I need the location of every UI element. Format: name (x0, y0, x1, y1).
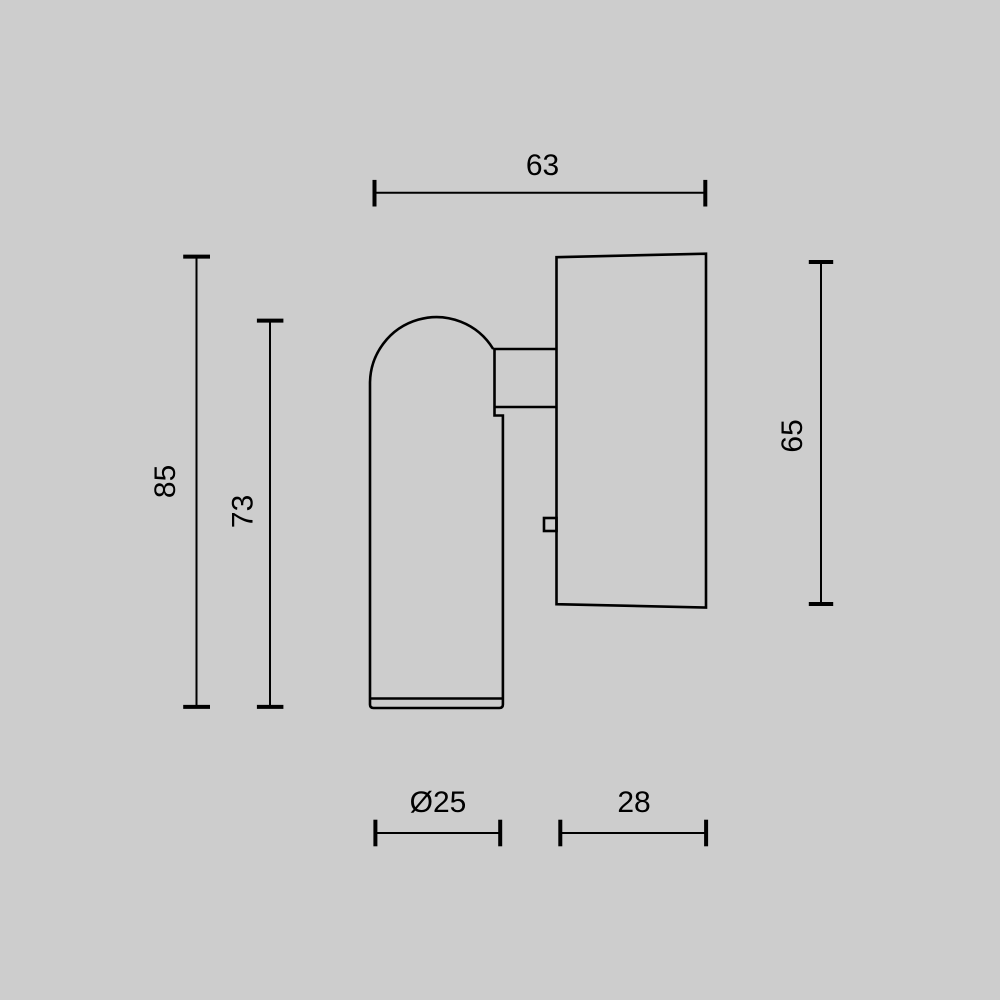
svg-text:73: 73 (226, 495, 259, 528)
svg-text:63: 63 (526, 149, 559, 182)
svg-text:85: 85 (149, 465, 182, 498)
svg-text:65: 65 (776, 419, 809, 452)
svg-text:Ø25: Ø25 (410, 786, 467, 819)
svg-text:28: 28 (617, 786, 650, 819)
